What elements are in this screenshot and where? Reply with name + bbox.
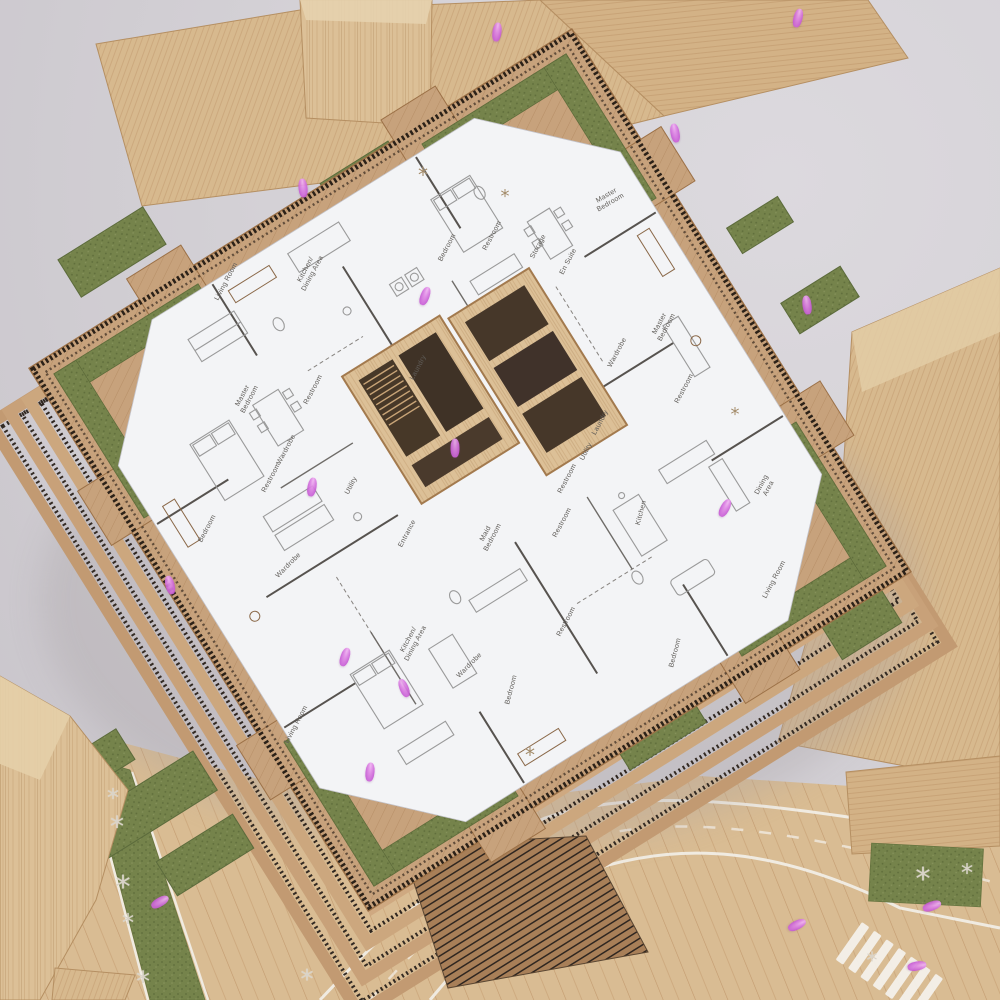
model-render-scene [0, 0, 1000, 1000]
lawn [869, 843, 984, 907]
architectural-model-screenshot: { "colors": { "background_gray": "#d4d1d… [0, 0, 1000, 1000]
wood-block [846, 756, 1000, 854]
